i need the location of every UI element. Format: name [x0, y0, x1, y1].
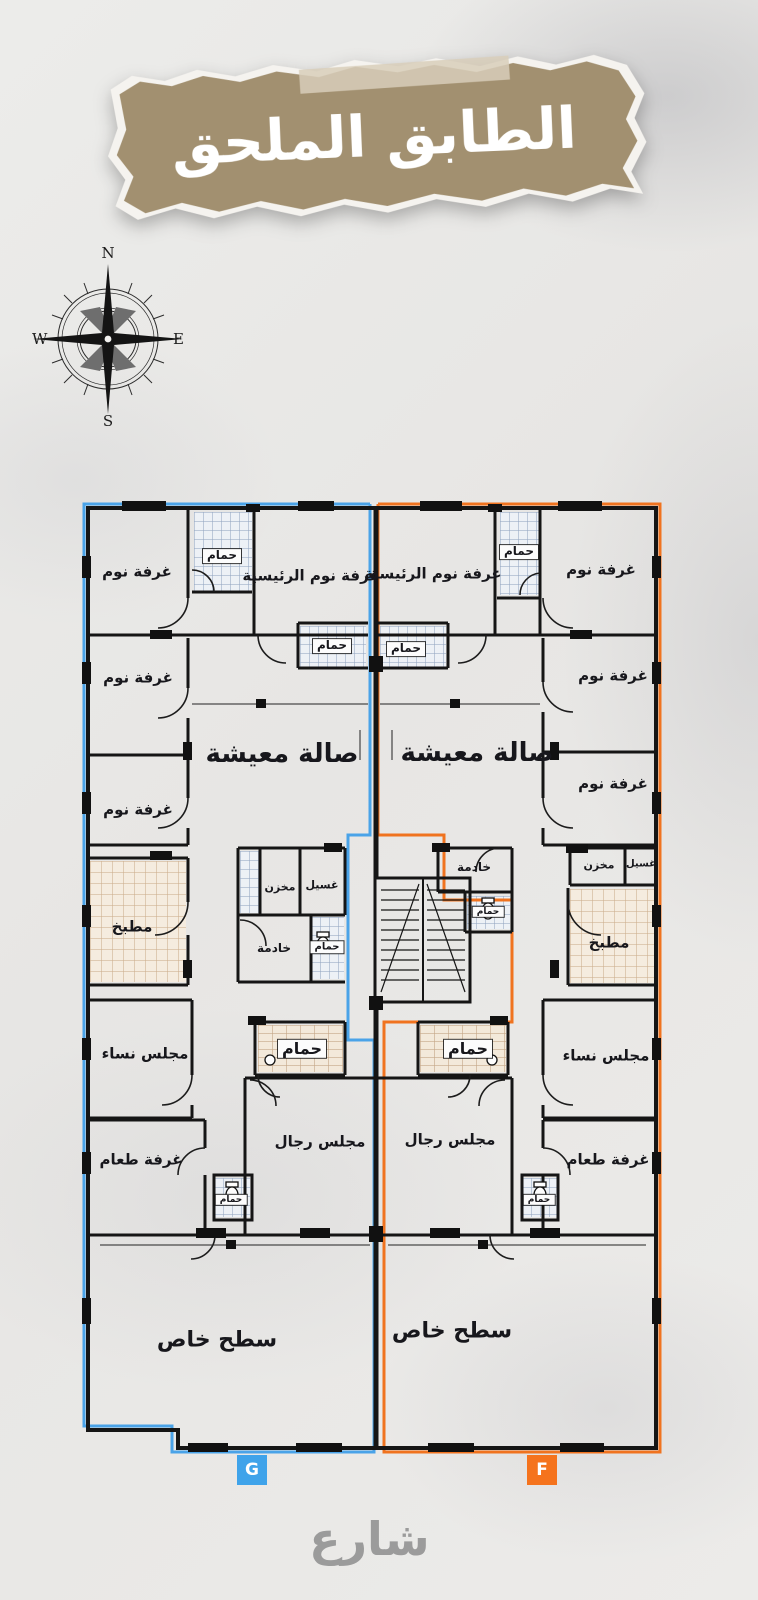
- room-label-dining: غرفة طعام: [567, 1151, 650, 1168]
- room-label-majlis-women: مجلس نساء: [102, 1045, 189, 1062]
- room-label-bathroom: حمام: [387, 642, 425, 656]
- room-label-bathroom: حمام: [313, 639, 351, 653]
- street-label: شارع: [309, 1512, 429, 1566]
- room-label-bathroom: حمام: [203, 549, 241, 563]
- room-label-master-bedroom: غرفة نوم الرئيسية: [364, 565, 501, 582]
- room-label-maid: خادمة: [257, 942, 291, 956]
- floor-plan-page: الطابق الملحق: [0, 0, 758, 1600]
- room-label-bathroom: حمام: [216, 1195, 247, 1205]
- room-label-laundry: غسيل: [305, 880, 338, 893]
- room-label-bathroom: حمام: [311, 941, 344, 953]
- room-label-bedroom: غرفة نوم: [578, 667, 648, 684]
- room-label-bedroom: غرفة نوم: [578, 775, 648, 792]
- room-label-bathroom: حمام: [278, 1040, 326, 1058]
- room-label-bathroom: حمام: [444, 1040, 492, 1058]
- room-label-storage: مخزن: [584, 860, 615, 873]
- room-label-bedroom: غرفة نوم: [102, 563, 172, 580]
- room-label-bedroom: غرفة نوم: [103, 669, 173, 686]
- room-label-roof: سطح خاص: [157, 1327, 277, 1352]
- room-label-storage: مخزن: [265, 882, 296, 895]
- room-label-bathroom: حمام: [473, 907, 504, 917]
- unit-f-badge: F: [527, 1455, 557, 1485]
- room-label-roof: سطح خاص: [392, 1318, 512, 1343]
- room-label-bathroom: حمام: [500, 545, 538, 559]
- room-label-majlis-men: مجلس رجال: [275, 1133, 366, 1150]
- room-label-living: صالة معيشة: [205, 740, 358, 770]
- unit-g-badge: G: [237, 1455, 267, 1485]
- room-label-living: صالة معيشة: [400, 739, 553, 769]
- stairs: [375, 878, 470, 1002]
- room-label-bedroom: غرفة نوم: [566, 561, 636, 578]
- inner-walls: [88, 508, 656, 1235]
- room-label-bedroom: غرفة نوم: [103, 801, 173, 818]
- room-label-bathroom: حمام: [524, 1195, 555, 1205]
- outer-walls: [88, 508, 656, 1448]
- room-label-kitchen: مطبخ: [112, 918, 153, 935]
- room-label-master-bedroom: غرفة نوم الرئيسية: [242, 567, 379, 584]
- room-label-majlis-women: مجلس نساء: [563, 1047, 650, 1064]
- room-label-kitchen: مطبخ: [589, 934, 630, 951]
- room-label-maid: خادمة: [457, 861, 491, 875]
- room-label-majlis-men: مجلس رجال: [405, 1131, 496, 1148]
- room-label-laundry: غسيل: [626, 858, 656, 870]
- room-label-dining: غرفة طعام: [100, 1151, 183, 1168]
